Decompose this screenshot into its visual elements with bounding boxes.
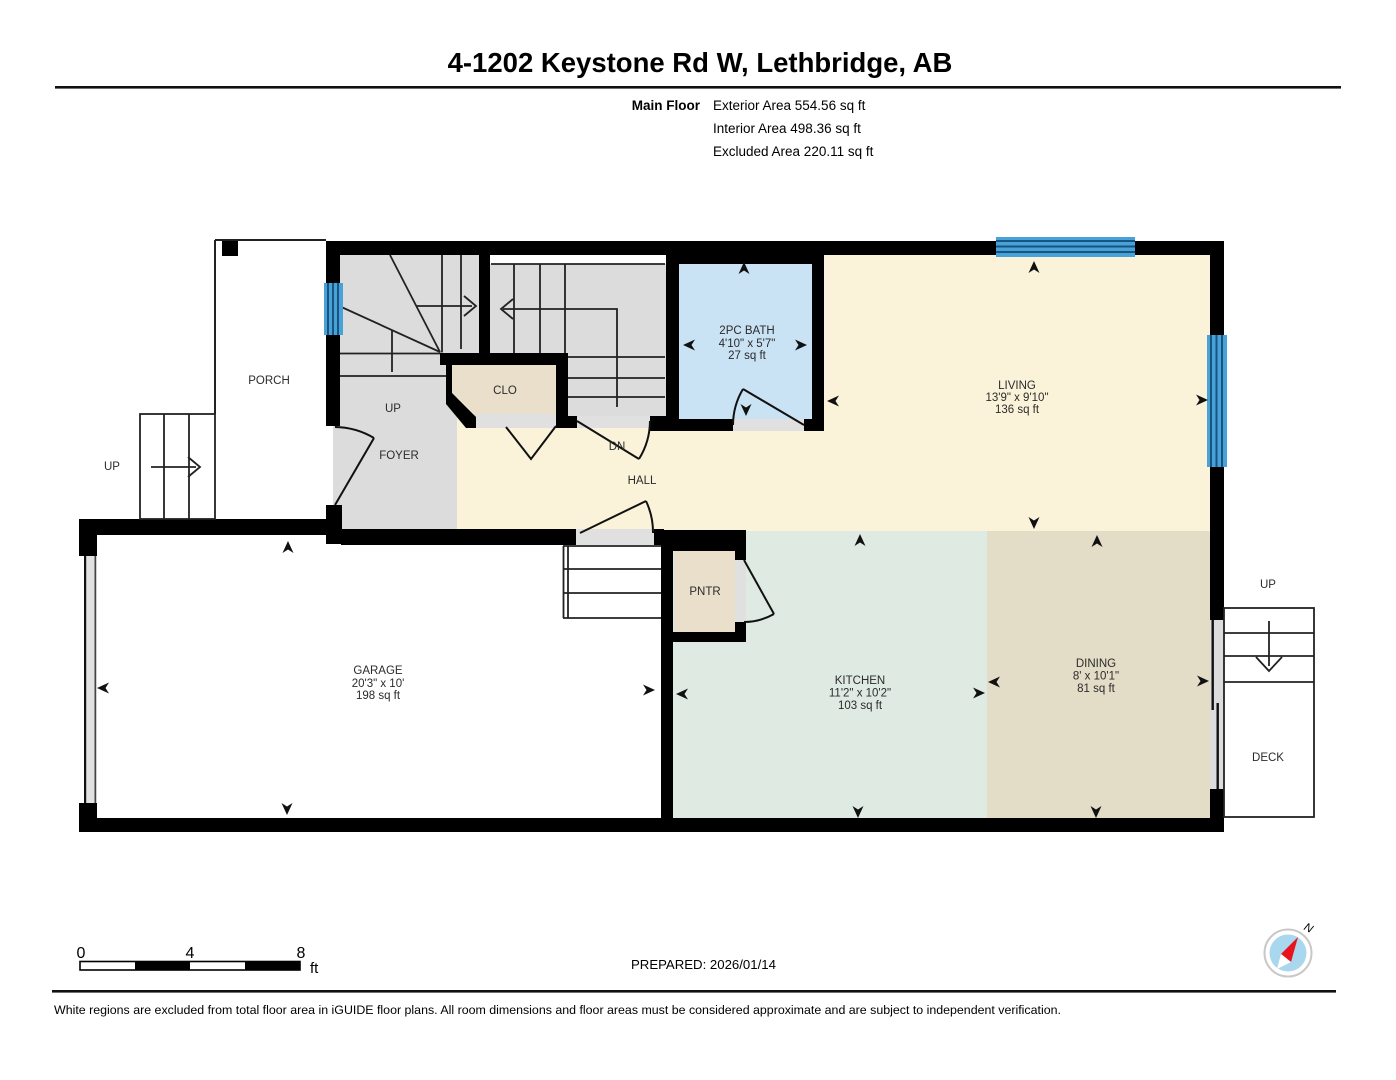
svg-text:PORCH: PORCH xyxy=(248,375,290,387)
svg-text:Main Floor: Main Floor xyxy=(632,98,701,113)
svg-text:LIVING: LIVING xyxy=(998,380,1036,392)
svg-text:UP: UP xyxy=(104,461,120,473)
svg-text:4-1202 Keystone Rd W, Lethbrid: 4-1202 Keystone Rd W, Lethbridge, AB xyxy=(448,47,953,78)
svg-text:DECK: DECK xyxy=(1252,752,1284,764)
svg-text:8: 8 xyxy=(297,945,306,962)
svg-text:4'10" x 5'7": 4'10" x 5'7" xyxy=(719,338,776,350)
svg-text:198 sq ft: 198 sq ft xyxy=(356,690,401,702)
svg-text:DN: DN xyxy=(609,441,626,453)
svg-text:Interior Area 498.36 sq ft: Interior Area 498.36 sq ft xyxy=(713,121,861,136)
svg-text:2PC BATH: 2PC BATH xyxy=(719,325,774,337)
svg-text:UP: UP xyxy=(385,403,401,415)
svg-text:DINING: DINING xyxy=(1076,658,1116,670)
svg-text:GARAGE: GARAGE xyxy=(353,665,403,677)
svg-text:13'9" x 9'10": 13'9" x 9'10" xyxy=(985,392,1048,404)
svg-text:8' x 10'1": 8' x 10'1" xyxy=(1073,671,1119,683)
svg-text:136 sq ft: 136 sq ft xyxy=(995,404,1040,416)
svg-text:4: 4 xyxy=(186,945,195,962)
svg-text:81 sq ft: 81 sq ft xyxy=(1077,683,1116,695)
svg-text:Exterior Area 554.56 sq ft: Exterior Area 554.56 sq ft xyxy=(713,98,866,113)
svg-text:PREPARED: 2026/01/14: PREPARED: 2026/01/14 xyxy=(631,957,776,972)
svg-text:KITCHEN: KITCHEN xyxy=(835,675,885,687)
svg-text:ft: ft xyxy=(310,960,319,977)
svg-text:20'3" x 10': 20'3" x 10' xyxy=(352,678,405,690)
svg-text:Excluded Area 220.11 sq ft: Excluded Area 220.11 sq ft xyxy=(713,144,874,159)
svg-text:11'2" x 10'2": 11'2" x 10'2" xyxy=(829,688,891,700)
svg-text:White regions are excluded fro: White regions are excluded from total fl… xyxy=(54,1003,1061,1017)
svg-text:UP: UP xyxy=(1260,579,1276,591)
svg-text:CLO: CLO xyxy=(493,385,517,397)
svg-text:27 sq ft: 27 sq ft xyxy=(728,350,767,362)
svg-text:FOYER: FOYER xyxy=(379,450,419,462)
svg-text:PNTR: PNTR xyxy=(689,586,720,598)
svg-text:103 sq ft: 103 sq ft xyxy=(838,700,883,712)
svg-text:HALL: HALL xyxy=(628,475,657,487)
svg-text:0: 0 xyxy=(77,945,86,962)
